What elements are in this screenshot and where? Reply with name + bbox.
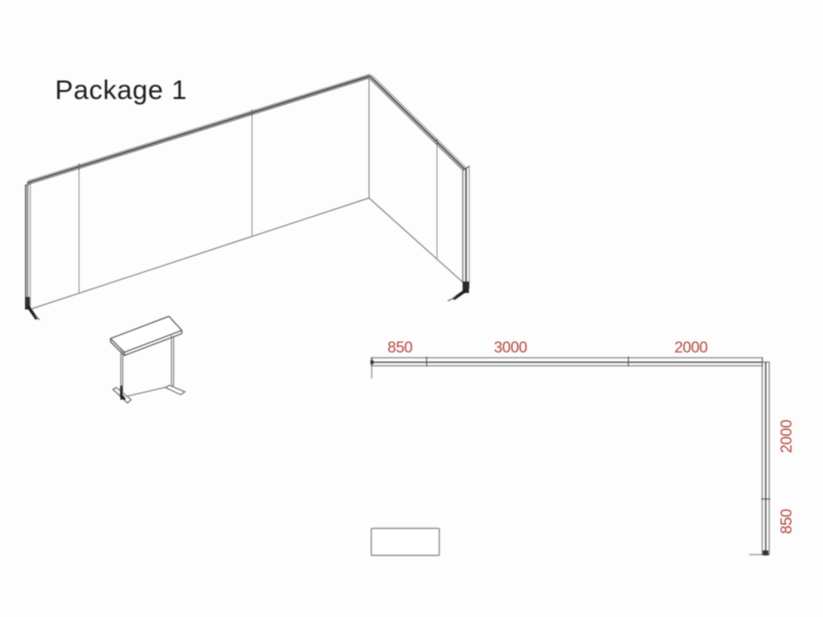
svg-text:2000: 2000	[779, 419, 796, 453]
svg-text:2000: 2000	[674, 340, 708, 357]
svg-text:850: 850	[779, 508, 796, 534]
svg-text:Package 1: Package 1	[55, 75, 187, 105]
svg-text:3000: 3000	[494, 340, 528, 357]
svg-text:850: 850	[388, 340, 414, 357]
